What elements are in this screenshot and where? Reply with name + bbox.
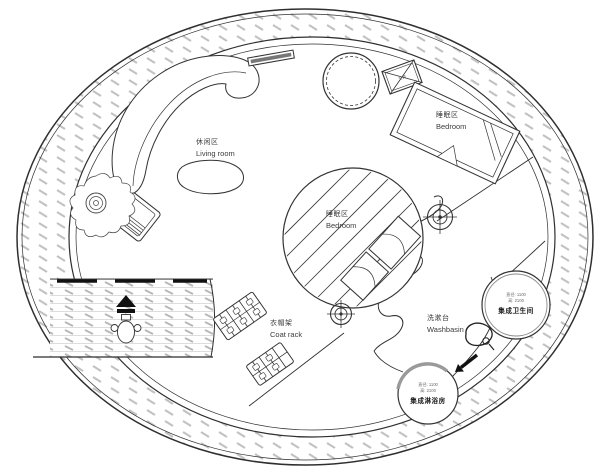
entrance-terrace <box>33 279 215 357</box>
bedroom-center-label-zh: 睡眠区 <box>326 210 349 218</box>
coat-rack-2 <box>246 342 294 386</box>
coat-rack-label-zh: 衣帽架 <box>270 318 293 327</box>
floor-plan-drawing: 休闲区 Living room 空调 睡眠区 Bedroom <box>0 0 611 473</box>
bathroom-pod: 直径: 1100 高: 2100 集成卫生间 <box>482 271 550 339</box>
washbasin-label-zh: 洗漱台 <box>427 313 450 322</box>
bathroom-spec-height: 高: 2100 <box>508 297 525 304</box>
shower-pod-label: 集成淋浴房 <box>409 396 445 405</box>
bedroom-main-label-zh: 睡眠区 <box>436 111 459 119</box>
bathroom-spec-diameter: 直径: 1100 <box>506 291 526 297</box>
floor-plan-canvas: 休闲区 Living room 空调 睡眠区 Bedroom <box>0 0 611 473</box>
bathroom-pod-label: 集成卫生间 <box>497 306 533 315</box>
coat-rack-label-en: Coat rack <box>270 330 302 339</box>
shower-spec-diameter: 直径: 1100 <box>418 381 438 387</box>
bedroom-center-label-en: Bedroom <box>326 221 356 230</box>
round-table <box>323 53 379 109</box>
coffee-table <box>177 160 243 193</box>
living-room-label-zh: 休闲区 <box>196 137 219 146</box>
curtain-to-shower-link <box>374 351 403 372</box>
shower-spec-height: 高: 2100 <box>420 387 437 394</box>
bedroom-main-label-en: Bedroom <box>436 122 466 131</box>
flow-arrow <box>455 355 477 372</box>
coat-rack-zone: 衣帽架 Coat rack <box>213 292 302 386</box>
coat-rack-1 <box>213 292 267 341</box>
terrace-hatch <box>50 279 213 357</box>
living-room-label-en: Living room <box>196 149 235 158</box>
shower-pod: 直径: 1100 高: 2100 集成淋浴房 <box>398 364 458 424</box>
bedroom-center-zone: 睡眠区 Bedroom <box>264 149 442 327</box>
washbasin-label-en: Washbasin <box>427 325 464 334</box>
target-symbol-upper <box>423 200 457 234</box>
wall-shelf <box>248 50 295 66</box>
washbasin-zone: 洗漱台 Washbasin <box>427 313 494 372</box>
